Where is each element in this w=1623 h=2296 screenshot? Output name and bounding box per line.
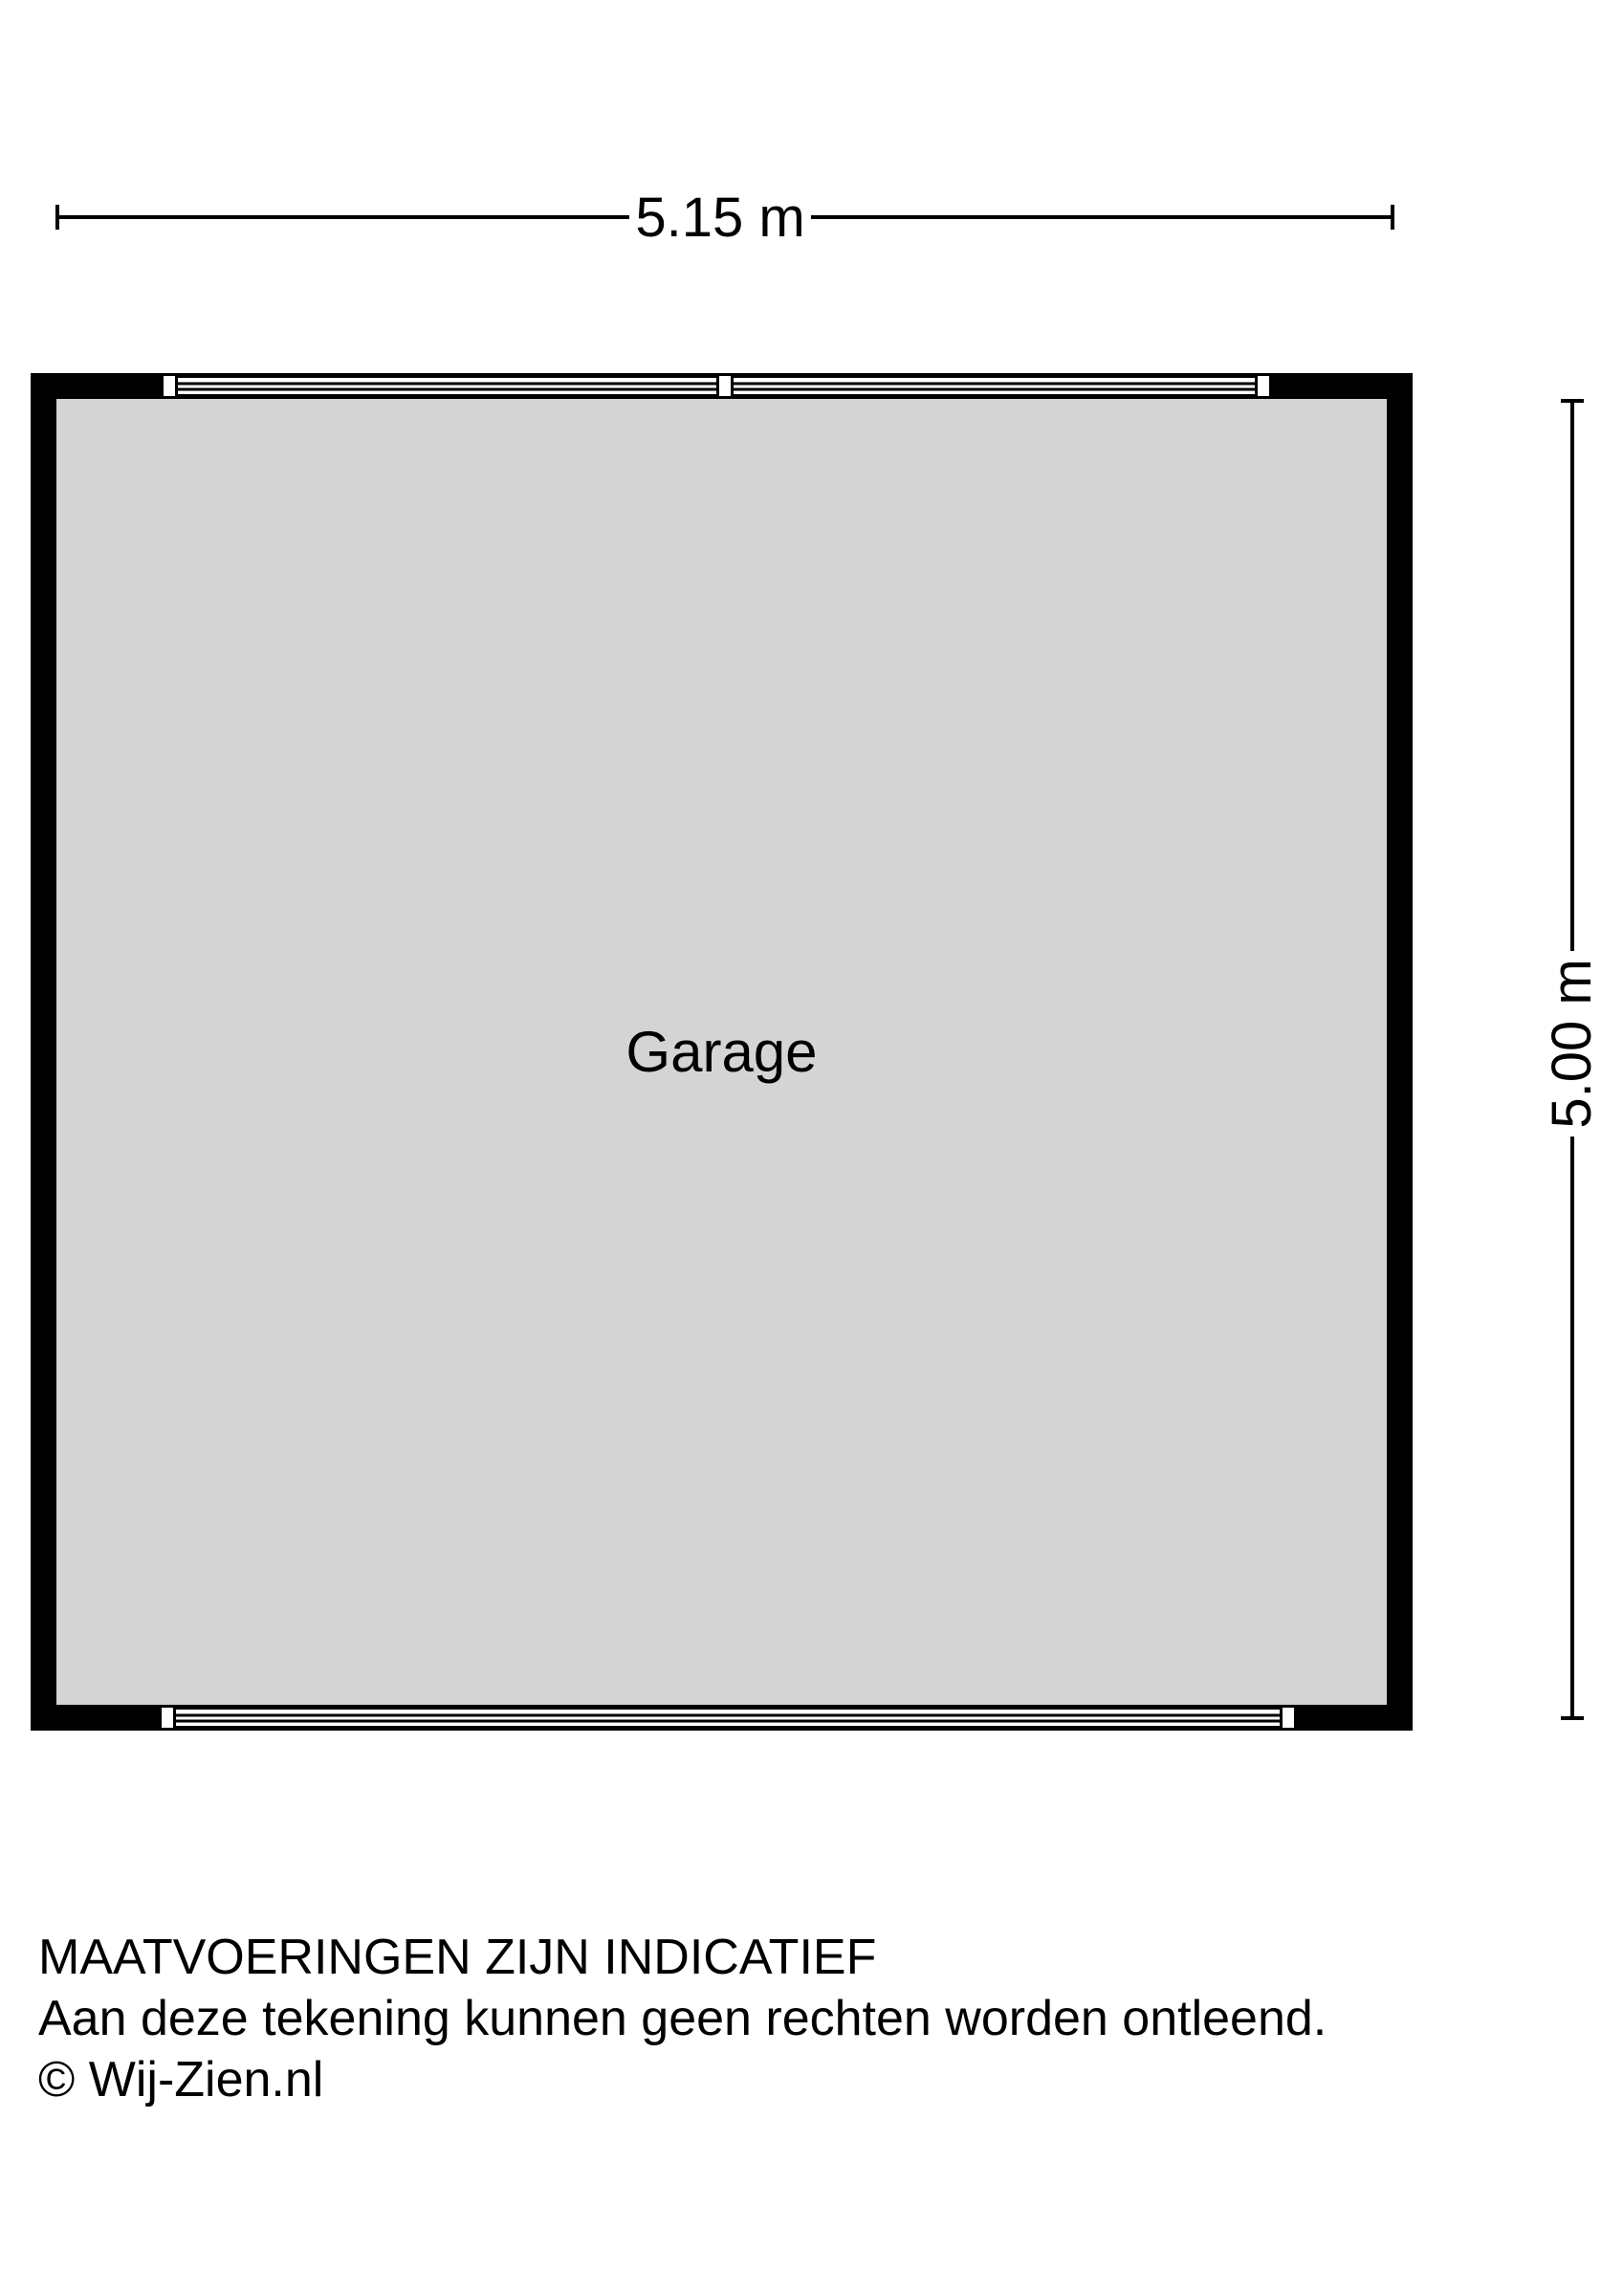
garage-room-outline: Garage (31, 373, 1413, 1731)
dimension-line-segment (1570, 402, 1574, 951)
window-glass-lines (162, 1713, 1294, 1722)
disclaimer: MAATVOERINGEN ZIJN INDICATIEF Aan deze t… (38, 1927, 1327, 2110)
window-frame-post (1255, 373, 1272, 399)
dimension-tick-bottom (1561, 1716, 1584, 1720)
window-frame-post (1280, 1705, 1297, 1731)
disclaimer-line-2: Aan deze tekening kunnen geen rechten wo… (38, 1988, 1327, 2049)
floorplan-page: 5.15 m 5.00 m Garage MAATVOERINGEN ZIJN … (0, 0, 1623, 2296)
height-dimension-label: 5.00 m (1544, 959, 1601, 1128)
dimension-tick-right (1391, 205, 1394, 230)
dimension-line-segment (811, 215, 1394, 219)
width-dimension: 5.15 m (55, 196, 1394, 238)
dimension-line-segment (55, 215, 629, 219)
window-frame-post (161, 373, 178, 399)
dimension-line-segment (1570, 1137, 1574, 1717)
garage-floor: Garage (56, 399, 1387, 1705)
width-dimension-label: 5.15 m (629, 189, 811, 247)
disclaimer-line-1: MAATVOERINGEN ZIJN INDICATIEF (38, 1927, 1327, 1988)
copyright-line: © Wij-Zien.nl (38, 2049, 1327, 2110)
window-bottom (159, 1707, 1297, 1729)
window-frame-post (716, 373, 734, 399)
height-dimension: 5.00 m (1561, 399, 1584, 1720)
window-frame-post (159, 1705, 176, 1731)
room-label: Garage (625, 1024, 817, 1081)
